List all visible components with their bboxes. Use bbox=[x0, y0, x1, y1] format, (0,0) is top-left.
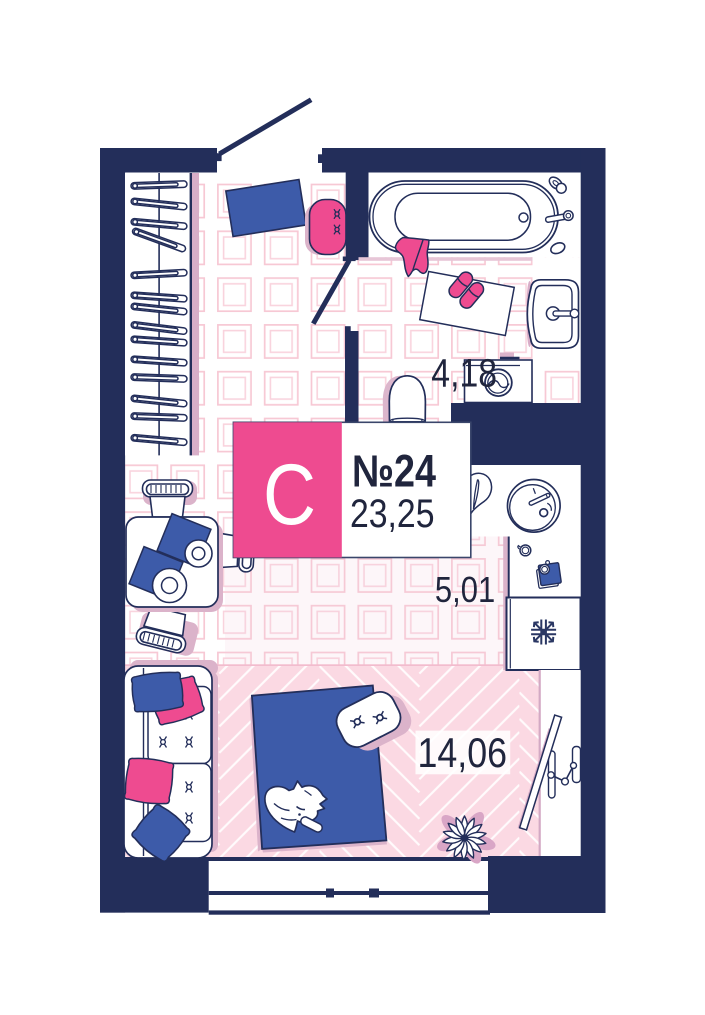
svg-text:4,18: 4,18 bbox=[431, 352, 497, 396]
svg-text:23,25: 23,25 bbox=[350, 492, 435, 536]
svg-text:С: С bbox=[263, 447, 316, 543]
svg-text:5,01: 5,01 bbox=[435, 569, 495, 610]
svg-text:14,06: 14,06 bbox=[418, 729, 508, 776]
svg-text:№24: №24 bbox=[352, 446, 436, 497]
